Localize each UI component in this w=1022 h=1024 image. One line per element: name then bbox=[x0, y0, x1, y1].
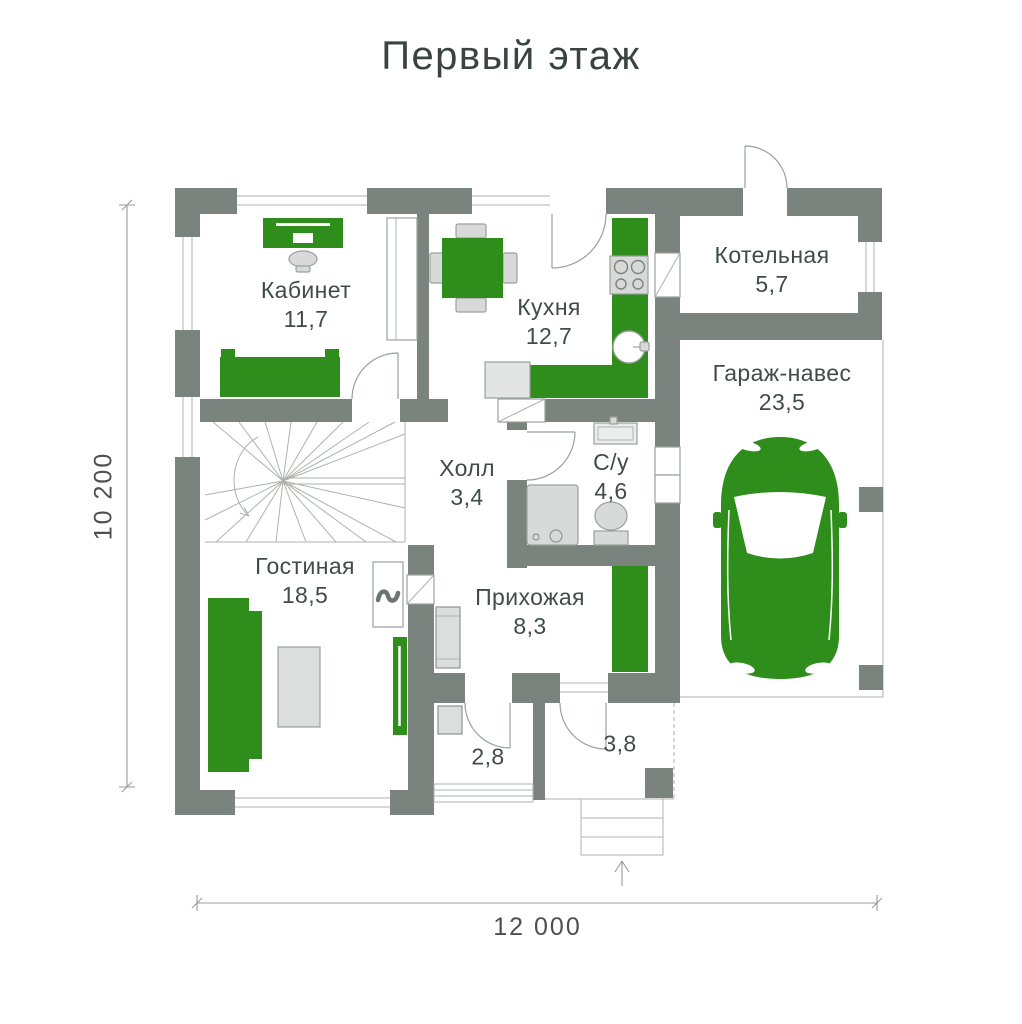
window bbox=[858, 242, 882, 292]
chimney-shaft bbox=[407, 575, 434, 604]
room-area: 2,8 bbox=[471, 743, 504, 772]
wall-segment bbox=[680, 313, 882, 340]
dining-table bbox=[442, 238, 503, 298]
door-swing bbox=[352, 353, 398, 399]
room-area: 18,5 bbox=[255, 581, 355, 610]
entrance-arrow-icon bbox=[615, 861, 629, 886]
floor-plan-drawing bbox=[0, 0, 1022, 1024]
room-area: 8,3 bbox=[475, 612, 585, 641]
tv-unit bbox=[393, 637, 407, 735]
desk bbox=[263, 218, 343, 248]
door-swing bbox=[465, 703, 510, 748]
room-label-boiler-room: Котельная 5,7 bbox=[715, 241, 830, 299]
wall-segment bbox=[434, 673, 465, 703]
pillar bbox=[645, 768, 673, 798]
wall-segment bbox=[608, 673, 680, 703]
door-swing bbox=[527, 432, 575, 480]
wardrobe bbox=[387, 218, 417, 340]
toilet-icon bbox=[594, 502, 628, 545]
coffee-table bbox=[278, 647, 320, 727]
room-area: 3,8 bbox=[603, 730, 636, 759]
room-name: Гостиная bbox=[255, 552, 355, 581]
dimension-horizontal-label: 12 000 bbox=[197, 913, 878, 942]
window bbox=[175, 397, 200, 457]
horizontal-dimension-line bbox=[192, 895, 882, 911]
closet bbox=[438, 706, 462, 734]
room-label-garage: Гараж-навес 23,5 bbox=[713, 359, 852, 417]
chair bbox=[430, 253, 444, 283]
room-name: Прихожая bbox=[475, 583, 585, 612]
sofa bbox=[220, 349, 340, 397]
door-swing bbox=[560, 703, 606, 749]
room-label-porch: 3,8 bbox=[603, 730, 636, 759]
room-label-living-room: Гостиная 18,5 bbox=[255, 552, 355, 610]
room-area: 11,7 bbox=[261, 305, 351, 334]
fireplace bbox=[373, 562, 403, 627]
wall-segment bbox=[408, 545, 434, 577]
dimension-vertical-label: 10 200 bbox=[90, 452, 119, 540]
entrance-steps bbox=[581, 799, 663, 855]
pillar bbox=[859, 487, 883, 512]
room-name: Гараж-навес bbox=[713, 359, 852, 388]
chimney-shaft bbox=[655, 253, 680, 297]
shoe-cabinet bbox=[436, 607, 460, 668]
room-name: Кухня bbox=[517, 293, 581, 322]
desk-chair bbox=[289, 251, 317, 272]
floor-plan-page: Первый этаж Кабинет 11,7 Кухня 12,7 Коте… bbox=[0, 0, 1022, 1024]
wall-segment bbox=[858, 188, 882, 242]
wall-segment bbox=[417, 212, 429, 399]
vent-shaft bbox=[655, 475, 680, 503]
room-area: 12,7 bbox=[517, 322, 581, 351]
room-name: Холл bbox=[439, 454, 495, 483]
wall-segment bbox=[533, 703, 545, 800]
car-mirror bbox=[713, 512, 722, 528]
kitchen-counter bbox=[530, 365, 648, 398]
vent-shaft bbox=[655, 447, 680, 475]
room-name: Котельная bbox=[715, 241, 830, 270]
car-mirror bbox=[838, 512, 847, 528]
fridge bbox=[485, 362, 530, 398]
room-name: С/у bbox=[593, 448, 629, 477]
wall-segment bbox=[507, 545, 680, 566]
window bbox=[434, 784, 533, 802]
room-area: 23,5 bbox=[713, 388, 852, 417]
page-title: Первый этаж bbox=[0, 32, 1022, 80]
car-icon bbox=[713, 437, 847, 679]
stairs-icon bbox=[205, 422, 405, 542]
stove-icon bbox=[610, 256, 648, 294]
threshold-lines bbox=[560, 683, 608, 692]
window bbox=[237, 188, 367, 214]
wall-segment bbox=[408, 604, 434, 815]
wall-segment bbox=[400, 399, 448, 422]
room-area: 4,6 bbox=[593, 477, 629, 506]
room-label-hall: Холл 3,4 bbox=[439, 454, 495, 512]
wall-segment bbox=[367, 188, 472, 214]
room-area: 5,7 bbox=[715, 270, 830, 299]
wall-segment bbox=[175, 790, 235, 815]
room-label-entryway: Прихожая 8,3 bbox=[475, 583, 585, 641]
chair bbox=[456, 224, 486, 238]
wall-segment bbox=[175, 330, 200, 397]
chair bbox=[456, 298, 486, 312]
vertical-dimension-line bbox=[119, 200, 135, 792]
room-label-kitchen: Кухня 12,7 bbox=[517, 293, 581, 351]
car-windshield bbox=[734, 492, 826, 559]
wall-segment bbox=[512, 673, 560, 703]
wardrobe bbox=[612, 566, 648, 672]
window bbox=[235, 790, 390, 815]
wall-segment bbox=[507, 422, 527, 430]
chimney-shaft bbox=[498, 399, 545, 422]
window bbox=[472, 188, 550, 214]
wall-segment bbox=[680, 188, 743, 216]
room-label-vestibule: 2,8 bbox=[471, 743, 504, 772]
room-label-bathroom: С/у 4,6 bbox=[593, 448, 629, 506]
room-label-office: Кабинет 11,7 bbox=[261, 276, 351, 334]
wall-segment bbox=[175, 457, 200, 815]
wall-segment bbox=[606, 188, 680, 214]
room-name: Кабинет bbox=[261, 276, 351, 305]
door-swing bbox=[745, 146, 787, 188]
window bbox=[175, 237, 200, 330]
shower-icon bbox=[527, 485, 578, 545]
wall-segment bbox=[655, 503, 680, 700]
pillar bbox=[859, 665, 883, 690]
wall-segment bbox=[655, 212, 680, 253]
chair bbox=[503, 253, 517, 283]
wall-segment bbox=[175, 188, 200, 237]
room-area: 3,4 bbox=[439, 483, 495, 512]
wall-segment bbox=[200, 399, 352, 422]
door-swing bbox=[552, 214, 606, 268]
sofa bbox=[208, 598, 262, 772]
wall-segment bbox=[655, 297, 680, 447]
